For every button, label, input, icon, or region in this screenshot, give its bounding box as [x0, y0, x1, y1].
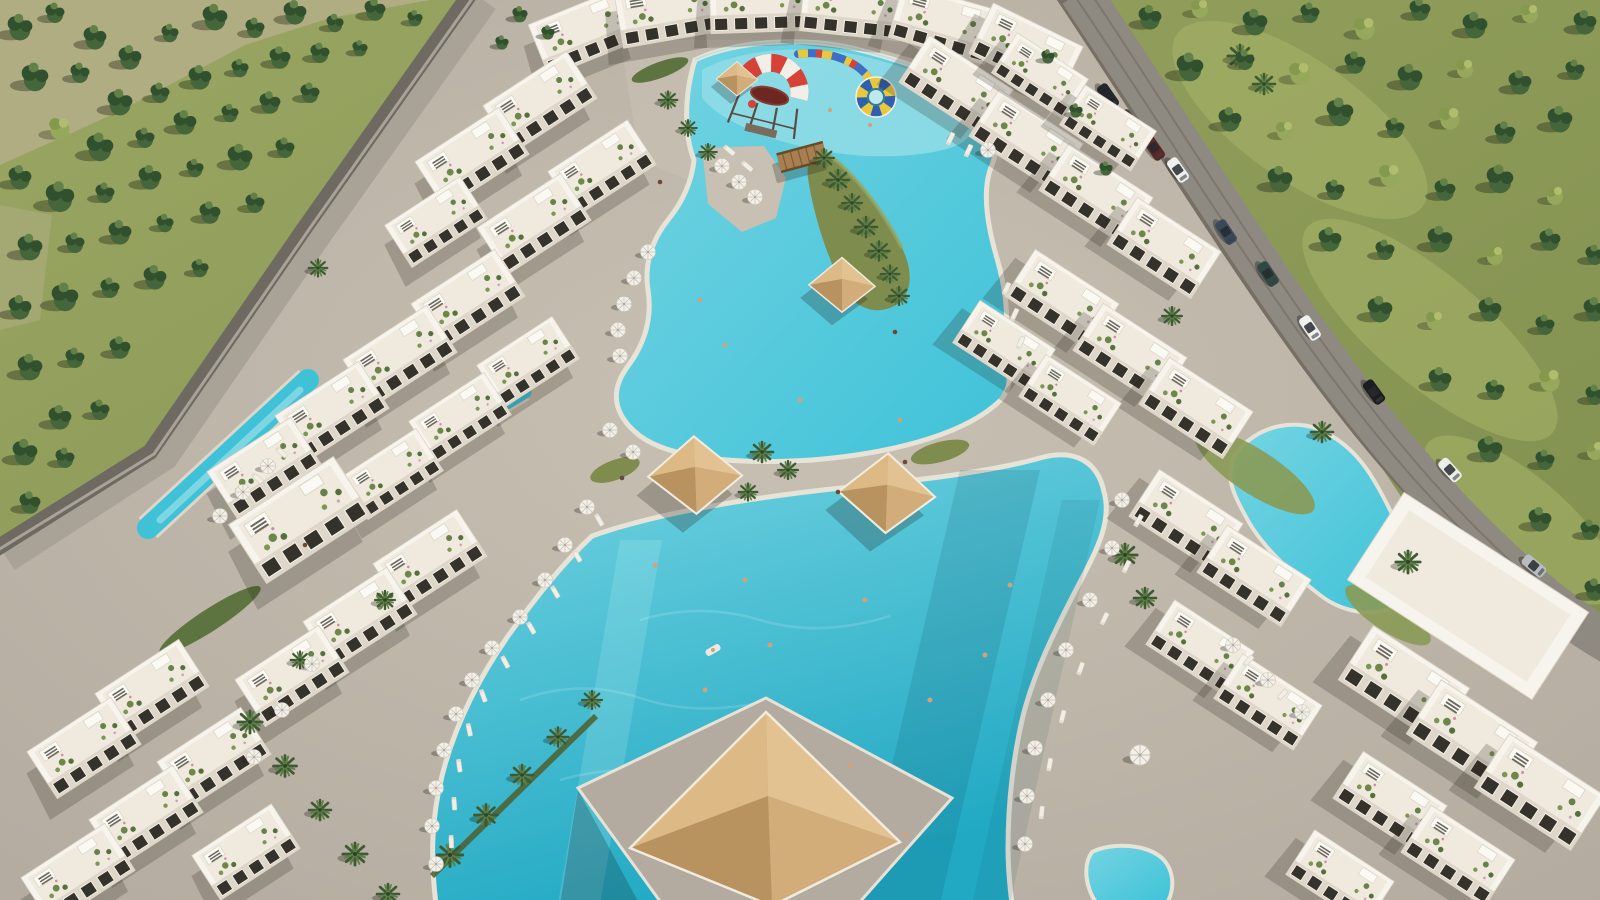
- screenshot-canvas: aerial-render-resort-complex-with-lagoon…: [0, 0, 1600, 900]
- lounger: [452, 797, 457, 810]
- splash-toy: [748, 100, 756, 108]
- resort-aerial-render: aerial-render-resort-complex-with-lagoon…: [0, 0, 1600, 900]
- bottom-right-pool: [1086, 846, 1172, 900]
- lounger: [449, 835, 454, 848]
